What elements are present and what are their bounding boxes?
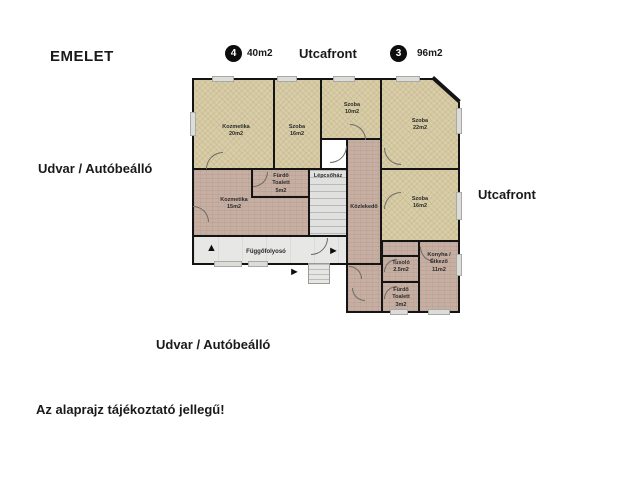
external-stairs bbox=[308, 263, 330, 284]
window bbox=[456, 254, 462, 276]
arrow-right-exit-icon: ► bbox=[289, 267, 300, 278]
disclaimer-text: Az alaprajz tájékoztató jellegű! bbox=[36, 402, 225, 417]
room-szoba-16-top bbox=[273, 78, 322, 170]
unit-4-badge: 4 bbox=[225, 45, 242, 62]
courtyard-label-left: Udvar / Autóbeálló bbox=[38, 161, 152, 176]
floor-plan-page: EMELET 4 40m2 Utcafront 3 96m2 Udvar / A… bbox=[0, 0, 640, 480]
door-arc bbox=[330, 146, 347, 163]
room-lepcsohaz bbox=[308, 168, 348, 237]
room-kozmetika-20 bbox=[192, 78, 275, 170]
street-label-right: Utcafront bbox=[478, 187, 536, 202]
window bbox=[277, 76, 297, 82]
window bbox=[333, 76, 355, 82]
window bbox=[214, 261, 242, 267]
window bbox=[428, 309, 450, 315]
courtyard-label-bottom: Udvar / Autóbeálló bbox=[156, 337, 270, 352]
window bbox=[190, 112, 196, 136]
room-kozlekedo bbox=[346, 138, 382, 265]
window bbox=[456, 108, 462, 134]
street-label-top: Utcafront bbox=[299, 46, 357, 61]
window bbox=[456, 192, 462, 220]
unit-4-area: 40m2 bbox=[247, 48, 273, 59]
window bbox=[390, 309, 408, 315]
unit-3-badge: 3 bbox=[390, 45, 407, 62]
arrow-right-icon: ► bbox=[328, 246, 339, 257]
window bbox=[212, 76, 234, 82]
window bbox=[396, 76, 420, 82]
arrow-up-icon: ▲ bbox=[206, 243, 217, 254]
unit-3-area: 96m2 bbox=[417, 48, 443, 59]
window bbox=[248, 261, 268, 267]
page-title: EMELET bbox=[50, 48, 114, 65]
